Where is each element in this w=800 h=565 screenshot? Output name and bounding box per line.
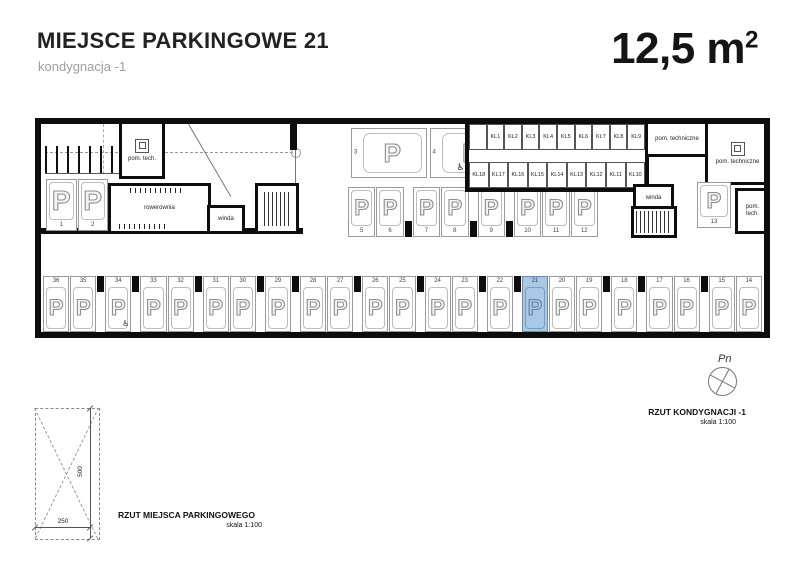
spot-number: 8 <box>442 227 467 236</box>
parking-p-symbol: P <box>354 195 369 221</box>
locker-label: KL12 <box>590 172 603 178</box>
parking-p-symbol: P <box>679 295 694 321</box>
parking-bay-outline: P <box>712 287 732 329</box>
parking-spot: 33 P <box>140 276 166 332</box>
pillar <box>195 276 202 292</box>
spot-number: 9 <box>479 227 504 236</box>
plan-caption: RZUT KONDYGNACJI -1 skala 1:100 <box>640 407 746 426</box>
parking-bay-outline: P <box>517 190 538 226</box>
parking-p-symbol: P <box>271 295 286 321</box>
spot-number: 11 <box>543 227 568 236</box>
parking-bay-outline: P <box>525 287 545 329</box>
parking-bay-outline: P <box>428 287 448 329</box>
locker-label: KL3 <box>526 134 536 140</box>
storage-locker: KL9 <box>627 124 645 150</box>
parking-p-symbol: P <box>173 295 188 321</box>
storage-locker: KL4 <box>539 124 557 150</box>
parking-bay-outline: P <box>739 287 759 329</box>
parking-bay-outline: P <box>143 287 163 329</box>
parking-spot: 26 P <box>362 276 388 332</box>
pillar <box>514 276 521 292</box>
locker-label: KL15 <box>531 172 544 178</box>
parking-bay-outline: P <box>46 287 66 329</box>
pillar <box>354 276 361 292</box>
spot-number: 1 <box>47 221 76 230</box>
storage-locker: KL3 <box>522 124 540 150</box>
pillar <box>417 276 424 292</box>
detail-caption-scale: skala 1:100 <box>118 522 262 529</box>
pillar <box>638 276 645 292</box>
area-superscript: 2 <box>745 26 758 53</box>
spot-number: 2 <box>79 221 108 230</box>
north-arrow-line <box>716 369 730 393</box>
locker-label: KL9 <box>631 134 641 140</box>
parking-p-symbol: P <box>555 295 570 321</box>
parking-bay-outline: P <box>649 287 669 329</box>
parking-p-symbol: P <box>146 295 161 321</box>
parking-p-symbol: P <box>333 295 348 321</box>
parking-spot-13-wrap: 13 P <box>697 182 731 228</box>
parking-spot: 17 P <box>646 276 672 332</box>
parking-bay-outline: P <box>330 287 350 329</box>
parking-spot: 1 P <box>46 179 77 231</box>
parking-spot: 25 P <box>389 276 415 332</box>
parking-spot: 8 P <box>441 187 468 237</box>
spot-number: 15 <box>710 277 734 286</box>
parking-p-symbol: P <box>652 295 667 321</box>
locker-label: KL5 <box>561 134 571 140</box>
parking-bay-outline: P <box>49 182 74 220</box>
parking-p-symbol: P <box>52 185 71 217</box>
parking-spot: 36 P <box>43 276 69 332</box>
parking-p-symbol: P <box>577 195 592 221</box>
parking-spot: 23 P <box>452 276 478 332</box>
pillar <box>701 276 708 292</box>
storage-locker: KL7 <box>592 124 610 150</box>
spot-number: 10 <box>515 227 540 236</box>
parking-spot: 22 P <box>487 276 513 332</box>
locker-label: KL11 <box>610 172 622 178</box>
locker-label: KL16 <box>511 172 524 178</box>
parking-bay-outline: P <box>574 190 595 226</box>
locker-label: KL4 <box>543 134 553 140</box>
spot-number: 28 <box>301 277 325 286</box>
staircase-left <box>255 183 299 234</box>
parking-bay-outline: P <box>481 190 502 226</box>
locker-label: KL10 <box>629 172 642 178</box>
parking-spot: 19 P <box>576 276 602 332</box>
spot-number: 21 <box>523 277 547 286</box>
parking-spot: 20 P <box>549 276 575 332</box>
equipment-symbol <box>135 139 149 153</box>
parking-p-symbol: P <box>707 188 722 214</box>
spot-number: 33 <box>141 277 165 286</box>
parking-bay-outline: P <box>416 190 437 226</box>
pillar <box>405 221 412 237</box>
staircase-treads <box>636 211 672 233</box>
parking-p-symbol: P <box>714 295 729 321</box>
parking-row-lower: 36 P 35 P 34 P ♿ 33 P 32 P 31 P 30 P 29 <box>43 276 762 332</box>
spot-number: 4 <box>433 149 436 158</box>
parking-spot: 24 P <box>425 276 451 332</box>
parking-row-left: 1 P 2 P <box>46 179 108 231</box>
parking-p-symbol: P <box>395 295 410 321</box>
spot-number: 30 <box>231 277 255 286</box>
parking-p-symbol: P <box>430 295 445 321</box>
locker-label: KL2 <box>508 134 518 140</box>
storage-lockers-block: KL1KL2KL3KL4KL5KL6KL7KL8KL9 KL18KL17KL16… <box>465 124 649 192</box>
spot-number: 14 <box>737 277 761 286</box>
locker-label: KL6 <box>578 134 588 140</box>
staircase-right <box>631 206 677 238</box>
area-number: 12,5 m <box>611 24 745 73</box>
spot-number: 12 <box>572 227 597 236</box>
room-winda-left: winda <box>207 205 245 234</box>
spot-number: 23 <box>453 277 477 286</box>
pillar <box>603 276 610 292</box>
page-title: MIEJSCE PARKINGOWE 21 <box>37 28 329 54</box>
parking-p-symbol: P <box>368 295 383 321</box>
floor-subtitle: kondygnacja -1 <box>38 59 126 74</box>
parking-p-symbol: P <box>492 295 507 321</box>
storage-locker: KL13 <box>567 162 587 188</box>
pillar <box>132 276 139 292</box>
parking-bay-outline: P <box>73 287 93 329</box>
locker-row-top: KL1KL2KL3KL4KL5KL6KL7KL8KL9 <box>469 124 645 150</box>
parking-bay-outline: P <box>392 287 412 329</box>
dimension-line-vertical <box>90 408 91 538</box>
north-arrow-circle <box>708 367 737 396</box>
parking-spot: 6 P <box>376 187 403 237</box>
spot-number: 20 <box>550 277 574 286</box>
spot-number: 31 <box>204 277 228 286</box>
parking-p-symbol: P <box>520 195 535 221</box>
equipment-symbol-inner <box>734 145 741 152</box>
storage-locker: KL18 <box>469 162 489 188</box>
spot-number: 29 <box>266 277 290 286</box>
parking-spot: 9 P <box>478 187 505 237</box>
parking-p-symbol: P <box>235 295 250 321</box>
storage-locker: KL1 <box>487 124 505 150</box>
north-label: Pn <box>718 353 746 365</box>
parking-p-symbol: P <box>111 295 126 321</box>
parking-bay-outline: P <box>268 287 288 329</box>
parking-p-symbol: P <box>582 295 597 321</box>
parking-bay-outline: P <box>490 287 510 329</box>
spot-number: 35 <box>71 277 95 286</box>
locker-label: KL8 <box>614 134 624 140</box>
parking-bay-outline: P <box>379 190 400 226</box>
equipment-symbol <box>731 142 745 156</box>
pillar <box>506 221 513 237</box>
room-label: pom. techniczne <box>654 135 700 144</box>
parking-spot: 3 P <box>351 128 427 178</box>
storage-locker: KL15 <box>528 162 548 188</box>
parking-bay-outline: P <box>363 133 422 173</box>
wheelchair-icon: ♿ <box>122 319 129 328</box>
locker-label: KL14 <box>551 172 564 178</box>
spot-number: 19 <box>577 277 601 286</box>
storage-locker: KL6 <box>575 124 593 150</box>
bike-rack-hatch <box>130 188 183 193</box>
spot-number: 3 <box>354 149 357 158</box>
room-label: pom. techniczne <box>715 158 761 167</box>
spot-number: 24 <box>426 277 450 286</box>
equipment-symbol-inner <box>139 142 146 149</box>
parking-spot: 28 P <box>300 276 326 332</box>
storage-locker: KL14 <box>547 162 567 188</box>
parking-p-symbol: P <box>306 295 321 321</box>
room-label: winda <box>645 194 663 203</box>
room-pom-techniczne-small: pom. techniczne <box>645 124 709 157</box>
parking-bay-outline: P <box>545 190 566 226</box>
parking-spot: 31 P <box>203 276 229 332</box>
parking-spot: 29 P <box>265 276 291 332</box>
parking-p-symbol: P <box>617 295 632 321</box>
storage-locker: KL11 <box>606 162 626 188</box>
storage-locker: KL2 <box>504 124 522 150</box>
pillar <box>479 276 486 292</box>
parking-spot: 12 P <box>571 187 598 237</box>
parking-bay-outline: P <box>444 190 465 226</box>
parking-spot: 10 P <box>514 187 541 237</box>
spot-number: 27 <box>328 277 352 286</box>
storage-locker: KL8 <box>610 124 628 150</box>
wall-segment <box>290 124 297 150</box>
parking-row-upper: 5 P 6 P 7 P 8 P 9 P 10 P 11 P 12 <box>348 187 598 237</box>
parking-bay-outline: P <box>552 287 572 329</box>
parking-bay-outline: P <box>365 287 385 329</box>
detail-caption: RZUT MIEJSCA PARKINGOWEGO skala 1:100 <box>118 510 262 529</box>
parking-spot: 13 P <box>697 182 731 228</box>
room-label: rowerownia <box>143 204 176 213</box>
locker-row-bottom: KL18KL17KL16KL15KL14KL13KL12KL11KL10 <box>469 162 645 188</box>
room-pom-tech-left: pom. tech. <box>119 124 165 179</box>
spot-number: 26 <box>363 277 387 286</box>
locker-label: KL1 <box>490 134 500 140</box>
spot-number: 6 <box>377 227 402 236</box>
spot-number: 5 <box>349 227 374 236</box>
room-label: pom. tech. <box>738 203 767 219</box>
parking-bay-outline: P <box>171 287 191 329</box>
parking-p-symbol: P <box>384 138 401 169</box>
storage-locker: KL16 <box>508 162 528 188</box>
parking-spot: 27 P <box>327 276 353 332</box>
room-rowerownia: rowerownia <box>108 183 211 234</box>
locker-label: KL17 <box>492 172 505 178</box>
parking-spot: 7 P <box>413 187 440 237</box>
parking-spot: 18 P <box>611 276 637 332</box>
floor-plan: 1 P 2 P pom. tech. rowerownia winda 3 P … <box>35 118 770 338</box>
room-label: winda <box>217 215 235 224</box>
parking-p-symbol: P <box>76 295 91 321</box>
parking-bay-outline: P <box>206 287 226 329</box>
spot-number: 25 <box>390 277 414 286</box>
parking-p-symbol: P <box>419 195 434 221</box>
parking-spot: 14 P <box>736 276 762 332</box>
north-arrow: Pn <box>700 353 746 396</box>
plan-caption-scale: skala 1:100 <box>640 419 746 426</box>
spot-number: 34 <box>106 277 130 286</box>
locker-label: KL18 <box>472 172 485 178</box>
spot-number: 22 <box>488 277 512 286</box>
spot-number: 7 <box>414 227 439 236</box>
dimension-line-horizontal <box>35 527 90 528</box>
parking-bay-outline: P <box>677 287 697 329</box>
spot-number: 36 <box>44 277 68 286</box>
spot-number: 32 <box>169 277 193 286</box>
pillar <box>257 276 264 292</box>
parking-p-symbol: P <box>457 295 472 321</box>
pillar <box>470 221 477 237</box>
spot-number: 18 <box>612 277 636 286</box>
parking-p-symbol: P <box>484 195 499 221</box>
spot-number: 17 <box>647 277 671 286</box>
parking-spot: 11 P <box>542 187 569 237</box>
parking-spot: 30 P <box>230 276 256 332</box>
storage-locker: KL12 <box>586 162 606 188</box>
parking-spot: 2 P <box>78 179 109 231</box>
wheelchair-icon: ♿ <box>457 163 465 173</box>
parking-p-symbol: P <box>528 295 543 321</box>
pillar <box>97 276 104 292</box>
room-pom-techniczne-large: pom. techniczne <box>705 124 770 185</box>
parking-p-symbol: P <box>83 185 102 217</box>
dimension-label-width: 250 <box>47 518 79 525</box>
room-pom-tech-right: pom. tech. <box>735 188 770 234</box>
parking-bay-outline: P <box>81 182 106 220</box>
parking-spot: 15 P <box>709 276 735 332</box>
parking-p-symbol: P <box>741 295 756 321</box>
parking-spot: 35 P <box>70 276 96 332</box>
parking-spot: 34 P ♿ <box>105 276 131 332</box>
storage-locker: KL5 <box>557 124 575 150</box>
parking-p-symbol: P <box>549 195 564 221</box>
parking-spot: 32 P <box>168 276 194 332</box>
area-value: 12,5 m2 <box>611 24 758 74</box>
parking-bay-outline: P <box>233 287 253 329</box>
pillar <box>292 276 299 292</box>
parking-bay-outline: P <box>351 190 372 226</box>
parking-spot: 5 P <box>348 187 375 237</box>
staircase-treads <box>264 192 290 226</box>
dimension-label-height: 500 <box>77 466 84 477</box>
parking-bay-outline: P <box>303 287 323 329</box>
storage-locker-blank <box>469 124 487 150</box>
parking-bay-outline: P <box>455 287 475 329</box>
parking-bay-outline: P <box>579 287 599 329</box>
parking-spot: 21 P <box>522 276 548 332</box>
locker-label: KL7 <box>596 134 606 140</box>
bike-rack-hatch <box>119 224 166 229</box>
storage-locker: KL17 <box>489 162 509 188</box>
parking-p-symbol: P <box>383 195 398 221</box>
parking-p-symbol: P <box>49 295 64 321</box>
parking-spot: 16 P <box>674 276 700 332</box>
plan-caption-title: RZUT KONDYGNACJI -1 <box>640 407 746 417</box>
spot-number: 16 <box>675 277 699 286</box>
detail-caption-title: RZUT MIEJSCA PARKINGOWEGO <box>118 510 262 520</box>
parking-p-symbol: P <box>208 295 223 321</box>
parking-p-symbol: P <box>447 195 462 221</box>
room-label: pom. tech. <box>127 155 157 164</box>
spot-number: 13 <box>698 218 730 227</box>
parking-bay-outline: P <box>700 185 728 217</box>
parking-bay-outline: P <box>614 287 634 329</box>
locker-label: KL13 <box>570 172 583 178</box>
